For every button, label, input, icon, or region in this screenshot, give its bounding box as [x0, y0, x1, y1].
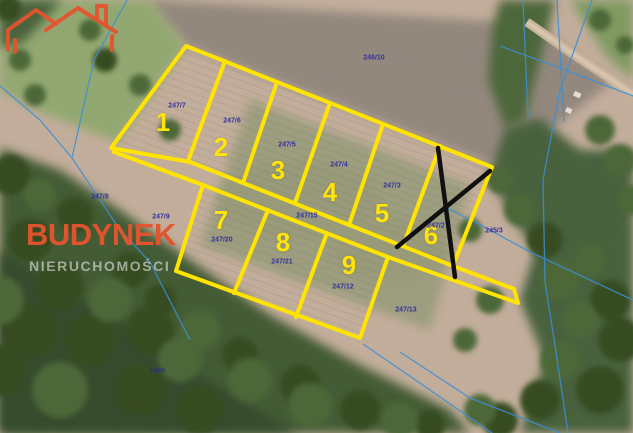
- house-icon: [0, 0, 130, 58]
- brand-tagline: NIERUCHOMOŚCI: [29, 259, 170, 273]
- brand-name: BUDYNEK: [26, 219, 176, 250]
- aerial-map-screenshot: 1247/72247/63247/54247/45247/36247/27247…: [0, 0, 633, 433]
